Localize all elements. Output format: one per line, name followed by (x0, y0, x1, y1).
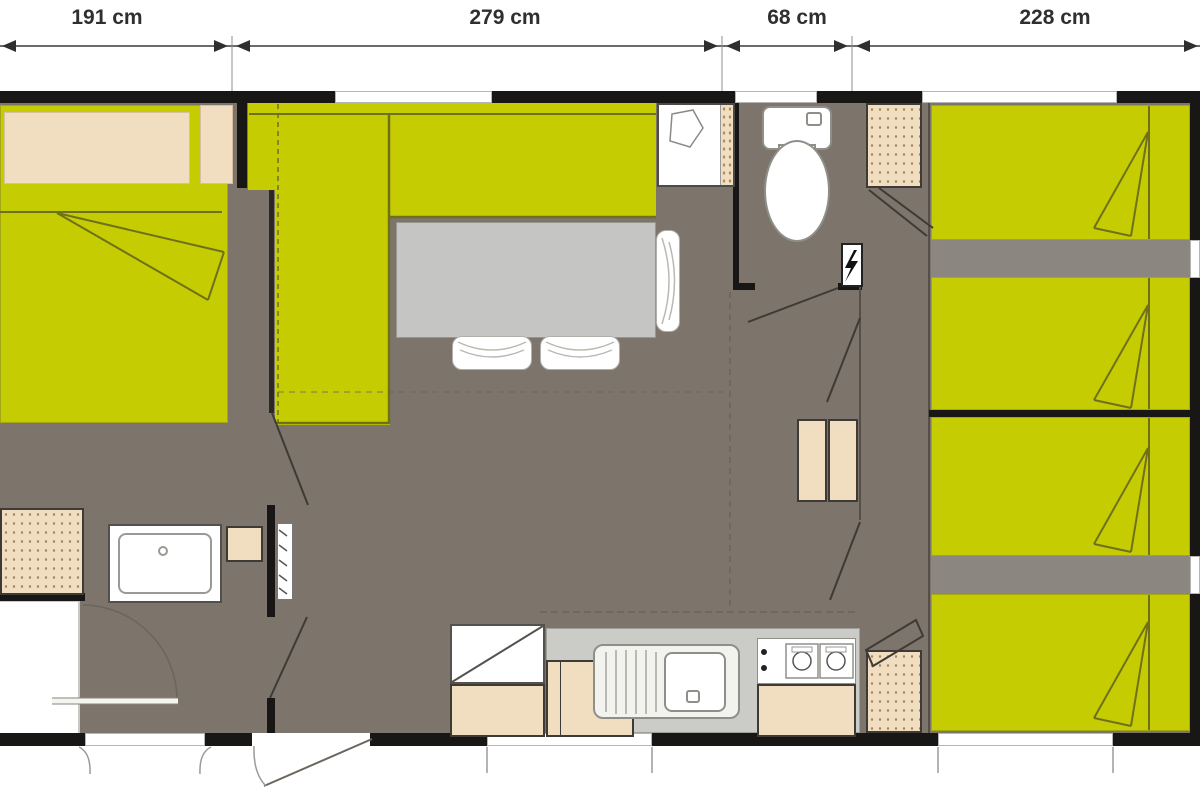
single-bed-2 (931, 277, 1190, 410)
pillow (200, 105, 233, 184)
dimension-arrow (834, 40, 848, 52)
bottom-wall (0, 733, 85, 746)
window-top-bedroom (922, 91, 1117, 103)
bottom-wall (1113, 733, 1200, 746)
dimension-arrow (856, 40, 870, 52)
bathroom-wall (267, 698, 275, 733)
single-bed-3 (931, 417, 1190, 556)
bedroom-partition-line (928, 103, 930, 733)
bathroom-wall (267, 505, 275, 617)
exterior-ticks (79, 747, 1113, 774)
dimension-label-228: 228 cm (1019, 6, 1090, 30)
bedside-gap (931, 240, 1190, 277)
bedrooms-divider-wall (929, 410, 1200, 417)
chair (540, 336, 620, 370)
window-bottom-bedroom (938, 733, 1113, 746)
heater (277, 523, 293, 600)
sink-drain (686, 690, 700, 703)
hallway-partition-line (859, 285, 861, 520)
toilet-bowl (764, 140, 830, 242)
dimension-label-68: 68 cm (767, 6, 827, 30)
dining-table (396, 222, 656, 338)
dimension-arrow (726, 40, 740, 52)
bedroom-wall-stub (237, 91, 247, 188)
bedside-gap (931, 556, 1190, 594)
window-bathroom (85, 733, 205, 746)
sink-basin (664, 652, 726, 712)
closet-hatch-strip (720, 105, 733, 185)
dimension-arrow (704, 40, 718, 52)
cabinet-divider (560, 660, 561, 737)
fridge (450, 624, 545, 684)
wardrobe (866, 103, 922, 188)
sofa-top-seat (390, 103, 656, 218)
dimension-arrow (236, 40, 250, 52)
shower-tray (0, 601, 80, 733)
right-wall (1190, 278, 1200, 556)
shelf-unit (828, 419, 858, 502)
mobile-home-floor-plan: 191 cm 279 cm 68 cm 228 cm (0, 0, 1200, 800)
window-right-2 (1190, 556, 1200, 594)
window-top-living (335, 91, 492, 103)
right-wall (1190, 594, 1200, 746)
entrance-door-swing (254, 739, 372, 786)
single-bed-1 (931, 105, 1190, 240)
single-bed-4 (931, 594, 1190, 731)
right-wall (1190, 91, 1200, 240)
wardrobe (866, 650, 922, 733)
window-top-wc (735, 91, 817, 103)
kitchen-cabinet (757, 684, 856, 737)
chair (452, 336, 532, 370)
kitchen-cabinet (450, 684, 545, 737)
dimension-label-279: 279 cm (469, 6, 540, 30)
shelf-unit (797, 419, 827, 502)
dimension-arrow (1184, 40, 1198, 52)
washbasin (118, 533, 212, 594)
sofa-left-seat (275, 103, 390, 425)
toilet-flush-button (806, 112, 822, 126)
entrance-door-opening (252, 733, 370, 746)
bedroom-living-wall (269, 188, 274, 413)
top-wall (0, 91, 335, 103)
electrical-panel (841, 243, 863, 287)
bottom-wall (205, 733, 252, 746)
wc-wall-bottom (733, 283, 755, 290)
chair (656, 230, 680, 332)
dimension-arrow (214, 40, 228, 52)
top-wall (492, 91, 735, 103)
top-wall (1117, 91, 1200, 103)
washbasin-drain (158, 546, 168, 556)
dimension-label-191: 191 cm (71, 6, 142, 30)
pillow (4, 112, 190, 184)
bathroom-wardrobe (0, 508, 84, 595)
dimension-line (0, 36, 1200, 91)
stove (757, 638, 856, 684)
bathroom-cabinet (226, 526, 263, 562)
window-right-1 (1190, 240, 1200, 278)
dimension-arrow (2, 40, 16, 52)
top-wall (817, 91, 922, 103)
